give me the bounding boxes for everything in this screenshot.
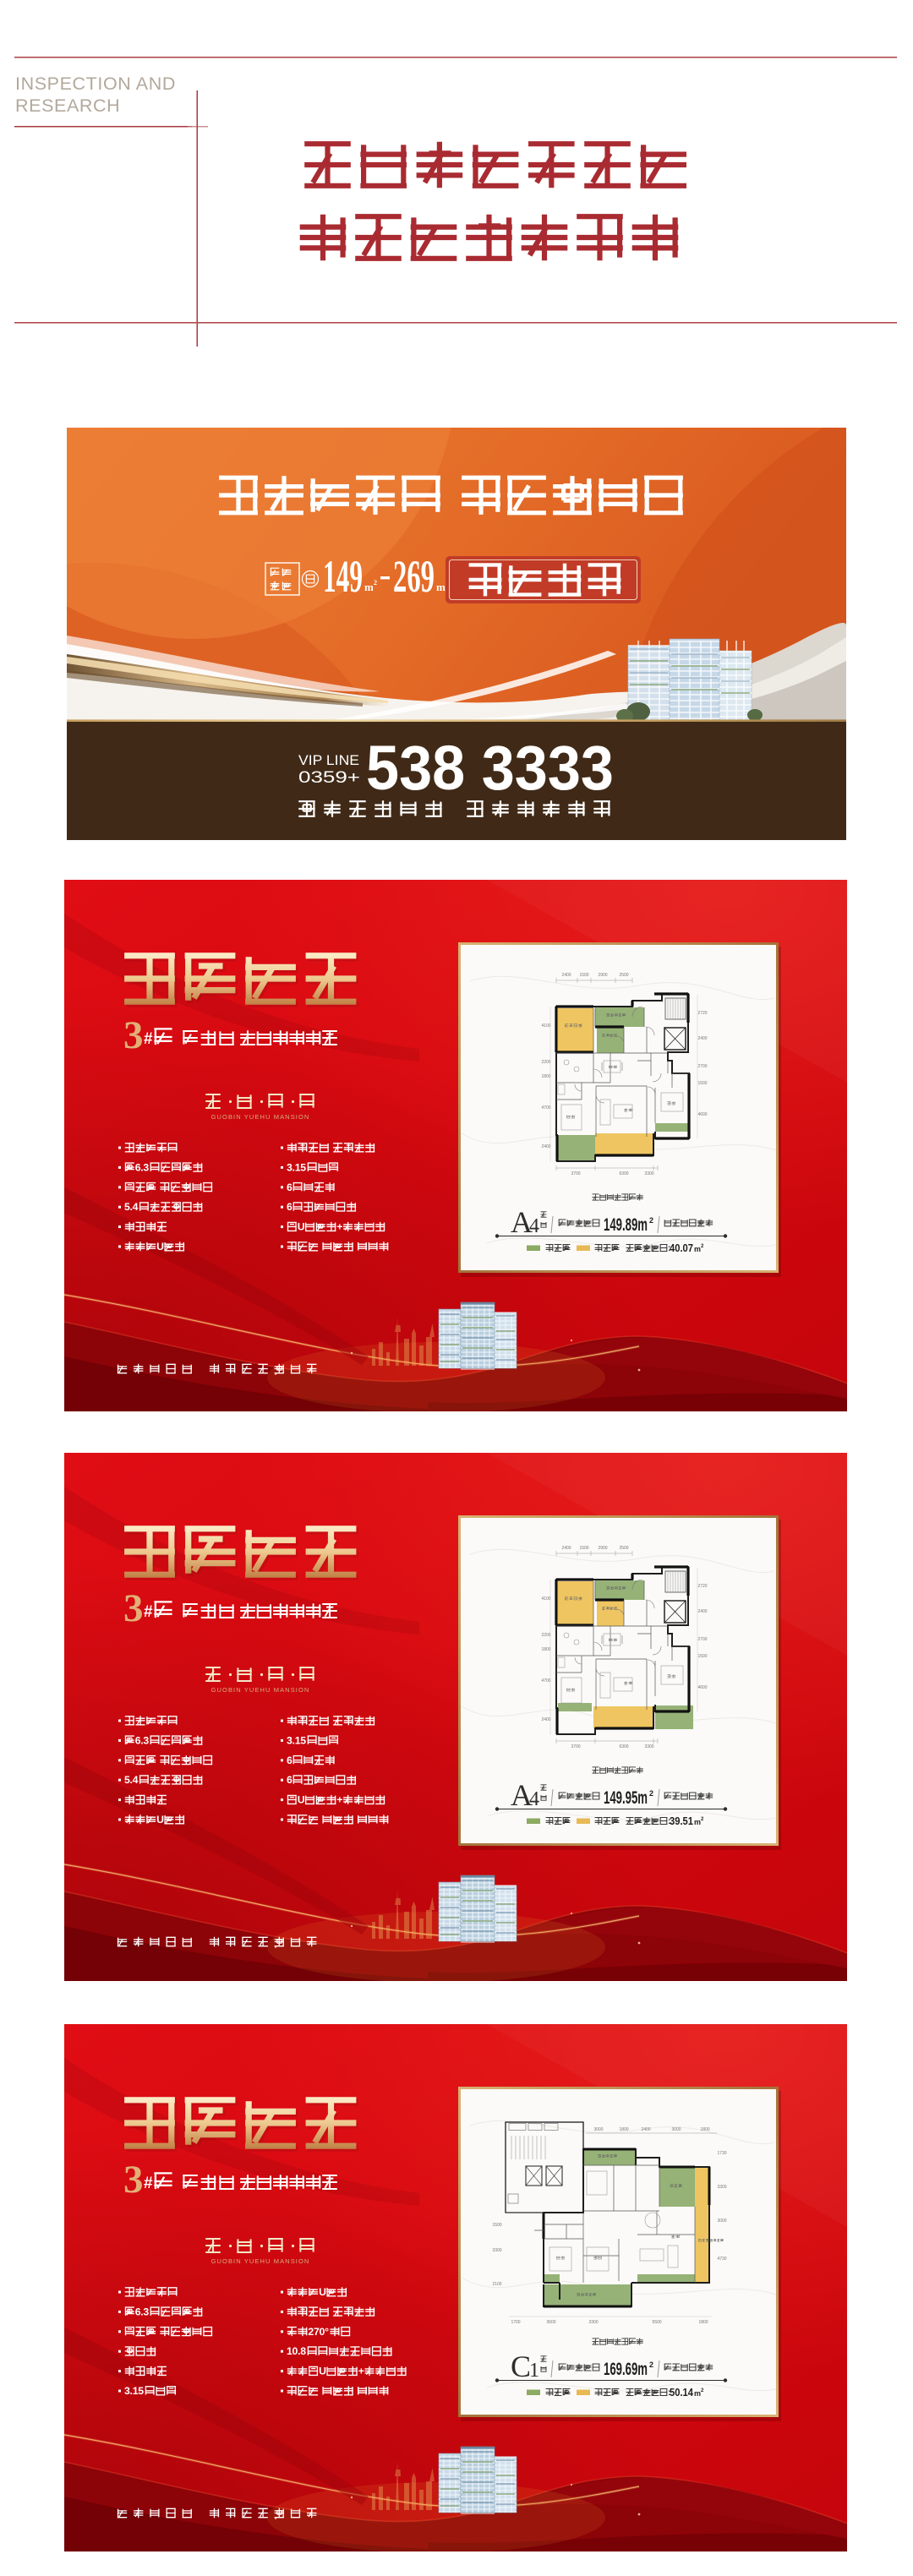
svg-text:0359+: 0359+ xyxy=(298,769,360,787)
svg-text:149.89m: 149.89m xyxy=(604,1215,648,1235)
svg-text:4700: 4700 xyxy=(541,1105,550,1111)
svg-text:C: C xyxy=(511,2350,531,2383)
svg-text:2: 2 xyxy=(649,1216,653,1225)
svg-text:3.15: 3.15 xyxy=(124,2385,144,2397)
svg-text:m: m xyxy=(364,581,374,593)
svg-text:INSPECTION AND: INSPECTION AND xyxy=(15,74,176,94)
svg-text:2: 2 xyxy=(649,1789,653,1798)
svg-text:1800: 1800 xyxy=(700,2127,709,2132)
svg-text:2: 2 xyxy=(649,2360,653,2369)
svg-text:1800: 1800 xyxy=(541,1074,550,1079)
svg-text:1500: 1500 xyxy=(697,1654,707,1659)
svg-text:m: m xyxy=(436,581,446,593)
svg-text:3000: 3000 xyxy=(717,2219,726,2224)
svg-text:1800: 1800 xyxy=(698,2320,708,2325)
svg-text:1500: 1500 xyxy=(579,973,588,978)
svg-text:#: # xyxy=(144,2175,153,2192)
svg-text:4700: 4700 xyxy=(541,1678,550,1684)
svg-text:GUOBIN YUEHU MANSION: GUOBIN YUEHU MANSION xyxy=(211,1686,310,1694)
svg-text:6.3: 6.3 xyxy=(135,1161,150,1173)
svg-text:2500: 2500 xyxy=(619,973,628,978)
svg-text:2400: 2400 xyxy=(541,1717,550,1722)
svg-text:1500: 1500 xyxy=(492,2223,501,2228)
svg-text:2400: 2400 xyxy=(561,1546,571,1551)
svg-text:149.95m: 149.95m xyxy=(604,1788,648,1808)
svg-text:3: 3 xyxy=(123,1586,144,1630)
svg-text:m: m xyxy=(694,1245,701,1253)
svg-text:2400: 2400 xyxy=(541,1144,550,1149)
svg-text:1500: 1500 xyxy=(697,1081,707,1086)
svg-text:U: U xyxy=(298,1794,305,1806)
svg-text:3000: 3000 xyxy=(671,2127,681,2132)
svg-text:269: 269 xyxy=(393,551,435,602)
svg-text:2500: 2500 xyxy=(619,1546,628,1551)
svg-text:10.8: 10.8 xyxy=(287,2345,306,2357)
svg-text:+: + xyxy=(336,1221,342,1233)
svg-text:3700: 3700 xyxy=(571,1744,580,1749)
svg-text:1800: 1800 xyxy=(619,2127,628,2132)
svg-text:U: U xyxy=(319,2366,326,2377)
svg-text:3300: 3300 xyxy=(717,2185,726,2190)
svg-text:3: 3 xyxy=(123,2158,144,2202)
svg-text:#: # xyxy=(144,1603,153,1621)
svg-text:3.15: 3.15 xyxy=(287,1734,306,1746)
svg-text:+: + xyxy=(336,1794,342,1806)
svg-text:3600: 3600 xyxy=(546,2320,555,2325)
svg-text:270°: 270° xyxy=(308,2326,329,2338)
svg-text:2200: 2200 xyxy=(541,1060,550,1065)
svg-text:1700: 1700 xyxy=(511,2320,520,2325)
svg-text:149: 149 xyxy=(323,551,363,602)
svg-text:6.3: 6.3 xyxy=(135,1734,150,1746)
svg-text:6: 6 xyxy=(287,1201,292,1213)
svg-text:1500: 1500 xyxy=(579,1546,588,1551)
svg-text:50.14: 50.14 xyxy=(670,2387,693,2399)
svg-text:2: 2 xyxy=(374,579,377,587)
svg-text:5.4: 5.4 xyxy=(124,1201,139,1213)
svg-text:3300: 3300 xyxy=(644,1171,653,1176)
svg-text:2400: 2400 xyxy=(561,973,571,978)
svg-text:3700: 3700 xyxy=(571,1171,580,1176)
svg-text:4: 4 xyxy=(529,1215,539,1237)
svg-text:538 3333: 538 3333 xyxy=(366,733,614,803)
svg-text:6: 6 xyxy=(287,1755,292,1766)
svg-text:6: 6 xyxy=(287,1182,292,1193)
svg-text:U: U xyxy=(156,1814,164,1826)
svg-text:1800: 1800 xyxy=(541,1647,550,1652)
svg-text:2700: 2700 xyxy=(697,1064,707,1069)
svg-text:5500: 5500 xyxy=(652,2320,661,2325)
svg-text:3: 3 xyxy=(123,1013,144,1057)
svg-text:4: 4 xyxy=(529,1788,539,1810)
svg-text:2700: 2700 xyxy=(697,1637,707,1642)
svg-text:3300: 3300 xyxy=(588,2320,598,2325)
svg-text:VIP LINE: VIP LINE xyxy=(298,752,359,768)
svg-text:2200: 2200 xyxy=(541,1633,550,1638)
svg-text:GUOBIN YUEHU MANSION: GUOBIN YUEHU MANSION xyxy=(211,2257,310,2265)
svg-text:4600: 4600 xyxy=(697,1685,707,1690)
svg-text:6300: 6300 xyxy=(619,1744,628,1749)
svg-text:2400: 2400 xyxy=(641,2127,650,2132)
svg-text:3300: 3300 xyxy=(644,1744,653,1749)
svg-text:4730: 4730 xyxy=(717,2257,726,2262)
svg-text:40.07: 40.07 xyxy=(670,1242,693,1254)
svg-text:2100: 2100 xyxy=(492,2282,501,2287)
svg-text:m: m xyxy=(694,2389,701,2398)
svg-text:6: 6 xyxy=(287,1774,292,1786)
svg-text:2400: 2400 xyxy=(697,1609,707,1614)
svg-text:4100: 4100 xyxy=(541,1596,550,1602)
svg-text:39.51: 39.51 xyxy=(670,1815,693,1827)
svg-text:1: 1 xyxy=(529,2360,539,2382)
svg-text:169.69m: 169.69m xyxy=(604,2360,648,2379)
svg-text:5.4: 5.4 xyxy=(124,1774,139,1786)
svg-text:U: U xyxy=(319,2286,326,2298)
svg-text:4600: 4600 xyxy=(697,1112,707,1117)
svg-text:4100: 4100 xyxy=(541,1023,550,1029)
svg-text:3.15: 3.15 xyxy=(287,1161,306,1173)
svg-text:2900: 2900 xyxy=(598,1546,607,1551)
svg-text:6300: 6300 xyxy=(619,1171,628,1176)
svg-text:RESEARCH: RESEARCH xyxy=(15,96,120,116)
svg-text:+: + xyxy=(358,2366,364,2377)
svg-text:U: U xyxy=(298,1221,305,1233)
svg-text:U: U xyxy=(156,1241,164,1253)
svg-text:2400: 2400 xyxy=(697,1036,707,1041)
svg-text:2720: 2720 xyxy=(697,1584,707,1589)
svg-text:2720: 2720 xyxy=(697,1011,707,1016)
svg-text:1730: 1730 xyxy=(717,2151,726,2156)
svg-text:3000: 3000 xyxy=(593,2127,603,2132)
svg-text:m: m xyxy=(694,1818,701,1826)
svg-text:#: # xyxy=(144,1030,153,1048)
svg-text:GUOBIN YUEHU MANSION: GUOBIN YUEHU MANSION xyxy=(211,1113,310,1121)
svg-text:6.3: 6.3 xyxy=(135,2306,150,2317)
svg-text:3300: 3300 xyxy=(492,2248,501,2253)
svg-text:2900: 2900 xyxy=(598,973,607,978)
